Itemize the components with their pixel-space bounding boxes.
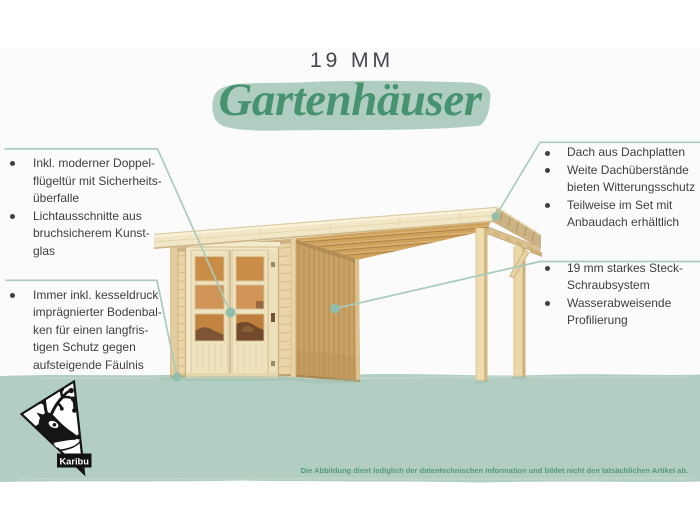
svg-text:Karibu: Karibu xyxy=(59,456,89,466)
